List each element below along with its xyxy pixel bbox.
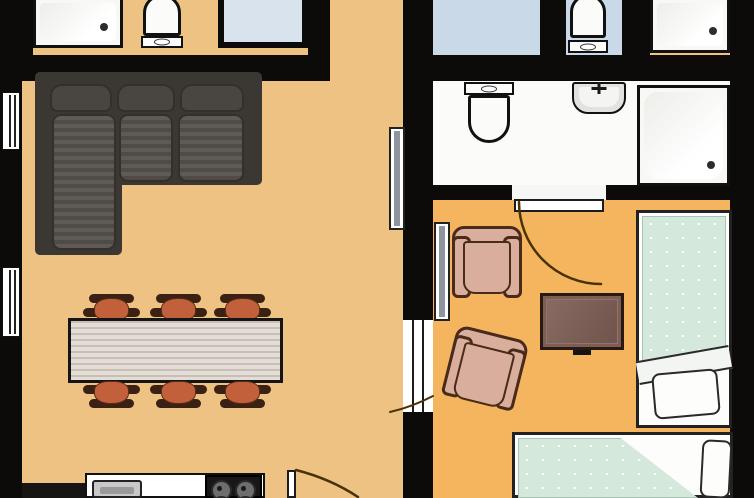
toilet-tank [568, 40, 608, 53]
shower-tray-surface [40, 3, 116, 41]
window-pane [14, 270, 16, 334]
wc-a-floor [433, 0, 540, 55]
toilet-bowl [468, 95, 510, 143]
toilet-tank [141, 36, 183, 48]
sofa-chaise-cushion [52, 114, 116, 250]
single-bed [512, 432, 733, 498]
stool-seat [225, 381, 260, 404]
stool [83, 380, 140, 408]
flush-button-icon [154, 39, 170, 46]
window-1 [2, 92, 20, 150]
panel-glass [439, 226, 445, 317]
sofa-back-cushion [50, 84, 112, 112]
sofa-back-cushion [117, 84, 175, 112]
window-pane [14, 95, 16, 147]
door-leaf [514, 199, 604, 212]
shower-tray [637, 85, 730, 186]
bed-blanket [642, 216, 726, 362]
wall-bath-north [433, 55, 754, 81]
toilet-tank [464, 82, 514, 95]
doorway-center [403, 320, 433, 412]
stool [214, 380, 271, 408]
stool [150, 380, 207, 408]
panel-glass [394, 131, 400, 226]
shower-drain-icon [100, 23, 108, 31]
door-leaf [287, 470, 296, 498]
tv-stand [540, 293, 624, 350]
gas-hob [205, 475, 262, 498]
bed-blanket [518, 438, 698, 498]
flush-button-icon [580, 43, 596, 50]
washbasin [572, 82, 626, 114]
window-2 [2, 267, 20, 337]
stool-seat [94, 381, 129, 404]
entry-door-swing-arc [296, 470, 358, 497]
wall-wc-divider-1 [540, 0, 566, 55]
armchair-seat [463, 241, 511, 294]
flush-button-icon [481, 85, 497, 92]
sofa-back-cushion [180, 84, 244, 112]
sliding-panel [434, 222, 450, 321]
glass-shower-tub [218, 0, 308, 48]
tv-stand-foot [573, 350, 591, 355]
sliding-panel [389, 127, 405, 230]
door-jamb [412, 320, 414, 412]
window-pane [9, 270, 11, 334]
shower-tray [650, 0, 730, 53]
door-jamb [422, 320, 424, 412]
toilet-bowl [143, 0, 181, 36]
kitchen-sink [92, 480, 142, 498]
wall-top-left-corner [0, 0, 33, 55]
pillow [700, 439, 733, 498]
tv-stand-top [546, 299, 618, 344]
pillow [651, 368, 721, 420]
wall-bath-south-right [606, 185, 754, 200]
window-pane [9, 95, 11, 147]
wall-center [403, 0, 433, 498]
dining-table [68, 318, 283, 383]
wall-hall-west [308, 0, 330, 81]
sofa-seat-cushion [178, 114, 244, 182]
toilet-bowl [570, 0, 606, 38]
shower-tray [33, 0, 123, 48]
armchair [452, 226, 522, 296]
wall-bath-south-left [433, 185, 512, 200]
appliance-block [22, 483, 85, 498]
floor-plan [0, 0, 754, 498]
bath-door-opening [512, 185, 606, 200]
wall-wc-divider-2 [622, 0, 650, 55]
sofa-seat-cushion [119, 114, 173, 182]
shower-drain-icon [707, 161, 715, 169]
sink-basin [100, 487, 134, 494]
stool-seat [161, 381, 196, 404]
wall-right [730, 0, 754, 498]
single-bed [636, 210, 732, 428]
faucet-icon [592, 87, 607, 90]
shower-drain-icon [709, 27, 717, 35]
shower-tray-surface [657, 3, 723, 46]
